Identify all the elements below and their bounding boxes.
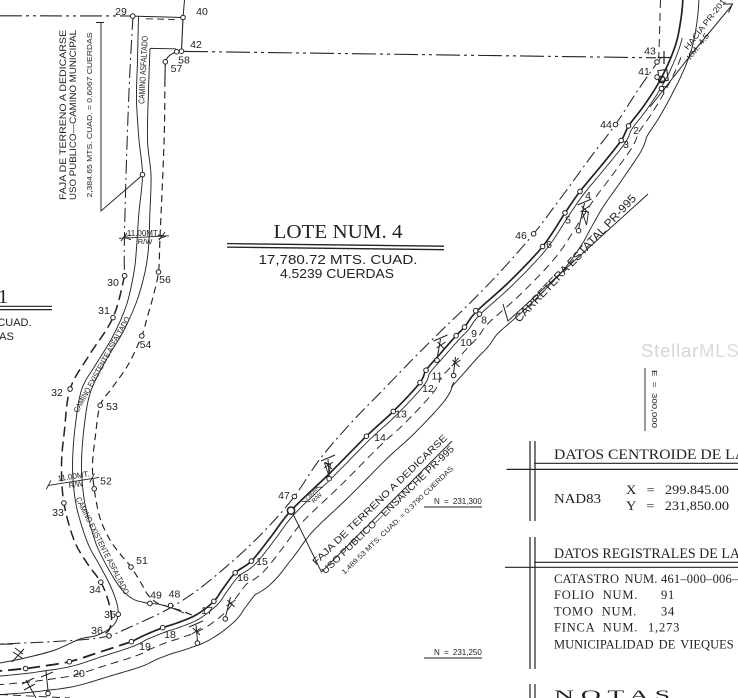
svg-text:MTS. CUAD.: MTS. CUAD. [0,317,32,329]
svg-text:R/W: R/W [138,237,154,246]
svg-text:6: 6 [546,239,552,251]
svg-text:1: 1 [0,286,8,308]
svg-text:11: 11 [432,371,443,383]
svg-text:7: 7 [661,84,667,96]
svg-text:17,780.72 MTS. CUAD.: 17,780.72 MTS. CUAD. [259,253,418,267]
svg-text:Y = 231,850.00: Y = 231,850.00 [626,499,729,513]
svg-text:FINCA NUM.1,273: FINCA NUM.1,273 [554,621,680,635]
svg-text:53: 53 [106,401,118,413]
svg-text:5: 5 [565,215,571,227]
svg-text:32: 32 [51,387,63,399]
svg-text:3: 3 [623,139,629,151]
svg-text:57: 57 [171,63,183,75]
svg-text:13: 13 [395,409,407,421]
svg-text:4.5239 CUERDAS: 4.5239 CUERDAS [280,267,394,281]
svg-text:N = 231,300: N = 231,300 [434,497,482,506]
svg-text:LOTE NUM. 4: LOTE NUM. 4 [274,221,403,243]
svg-text:N O T A S: N O T A S [554,688,670,698]
svg-text:47: 47 [278,490,290,502]
svg-text:44: 44 [600,119,612,131]
svg-text:USO PUBLICO—CAMINO MUNICIPAL: USO PUBLICO—CAMINO MUNICIPAL [68,30,79,200]
svg-text:35: 35 [104,609,116,621]
svg-text:54: 54 [140,339,152,351]
svg-text:2: 2 [633,125,639,137]
svg-text:E = 300,000: E = 300,000 [650,370,657,428]
svg-text:49: 49 [150,590,162,602]
svg-text:14: 14 [374,432,386,444]
svg-text:51: 51 [136,555,148,567]
svg-text:12: 12 [422,383,434,395]
svg-text:31: 31 [98,305,110,317]
svg-text:DATOS REGISTRALES DE LA: DATOS REGISTRALES DE LA [554,546,738,562]
svg-text:48: 48 [169,589,181,601]
svg-text:30: 30 [107,277,119,289]
svg-text:29: 29 [115,6,127,18]
svg-text:DATOS CENTROIDE DE LA: DATOS CENTROIDE DE LA [554,447,738,463]
svg-text:2,384.65 MTS. CUAD. = 0.6067 C: 2,384.65 MTS. CUAD. = 0.6067 CUERDAS [87,32,94,197]
svg-text:N = 231,250: N = 231,250 [434,648,482,657]
svg-text:NAD83: NAD83 [554,491,601,506]
svg-text:CATASTRO NUM.461–000–006–33: CATASTRO NUM.461–000–006–33 [554,572,738,586]
svg-text:8: 8 [481,315,487,327]
svg-text:17: 17 [201,605,213,617]
svg-text:52: 52 [100,476,112,488]
svg-text:43: 43 [644,46,656,58]
svg-text:CUERDAS: CUERDAS [0,331,14,343]
svg-text:StellarMLS: StellarMLS [641,340,738,361]
svg-text:9: 9 [471,328,477,340]
svg-text:41: 41 [638,66,650,78]
svg-text:36: 36 [91,625,103,637]
svg-text:33: 33 [52,507,64,519]
svg-text:40: 40 [196,6,208,18]
svg-text:42: 42 [190,39,202,51]
svg-text:MUNICIPALIDAD DE VIEQUES: MUNICIPALIDAD DE VIEQUES [554,638,734,652]
svg-text:4: 4 [585,190,591,202]
svg-text:46: 46 [515,230,527,242]
svg-text:34: 34 [89,584,101,596]
svg-text:56: 56 [159,274,171,286]
svg-text:X = 299.845.00: X = 299.845.00 [626,483,729,497]
svg-text:19: 19 [139,641,151,653]
svg-text:16: 16 [237,572,249,584]
svg-text:20: 20 [73,668,85,680]
svg-text:18: 18 [164,629,176,641]
svg-text:15: 15 [256,556,268,568]
